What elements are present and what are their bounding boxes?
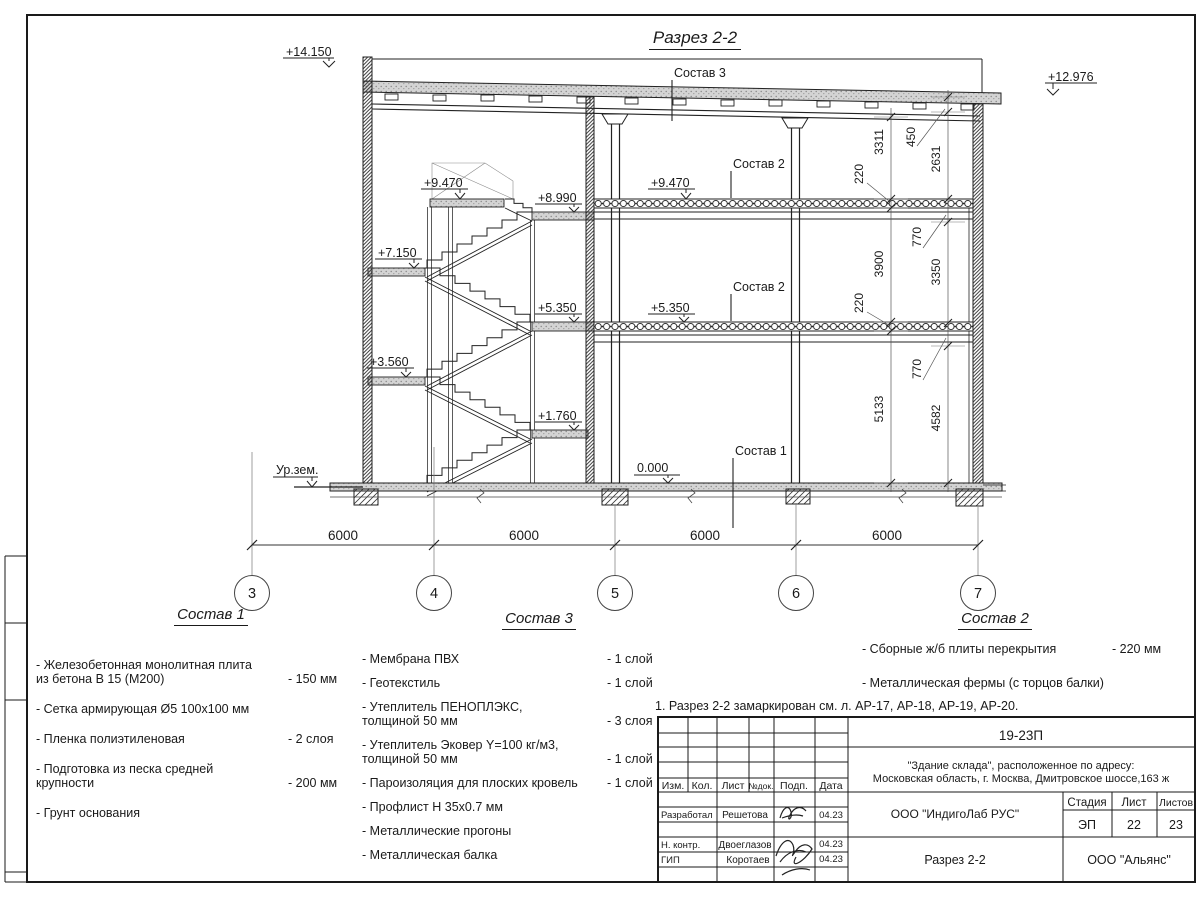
dim-value: 3311: [872, 129, 886, 155]
composition3-list: - Мембрана ПВХ - 1 слой - Геотекстиль - …: [362, 652, 658, 872]
dim-value: 6000: [328, 528, 358, 543]
stair-flight: [427, 430, 532, 483]
item-text: - Металлические прогоны: [362, 824, 607, 838]
bottom-dimensions: 6000 6000 6000 6000 3 4 5 6 7: [235, 447, 996, 611]
list-item: - Пленка полиэтиленовая - 2 слоя: [36, 732, 348, 746]
list-item: - Мембрана ПВХ - 1 слой: [362, 652, 658, 666]
item-value: - 220 мм: [1112, 642, 1161, 656]
stamp-role: Н. контр.: [661, 840, 700, 851]
dim-value: 6000: [509, 528, 539, 543]
sheet-note: 1. Разрез 2-2 замаркирован см. л. АР-17,…: [655, 699, 1175, 713]
dim-value: 2631: [929, 145, 943, 172]
item-value: - 1 слой: [607, 652, 653, 666]
leader-label-sostav3: Состав 3: [674, 66, 726, 80]
axis-number: 5: [611, 586, 619, 602]
item-text: - Пароизоляция для плоских кровель: [362, 776, 607, 790]
stamp-sheets-label: Листов: [1159, 797, 1194, 809]
list-item: - Металлическая фермы (с торцов балки): [862, 676, 1162, 690]
item-value: - 1 слой: [607, 752, 653, 766]
column-axis6: [782, 118, 808, 483]
signatures: [776, 807, 812, 875]
elevation-mark: +8.990: [535, 191, 582, 212]
floor-slab-5350: [594, 322, 973, 342]
stamp-object-line1: "Здание склада", расположенное по адресу…: [908, 760, 1135, 772]
stamp-col-kol: Кол.: [692, 780, 713, 792]
composition3-title: Состав 3: [474, 610, 604, 627]
title-block: 19-23П "Здание склада", расположенное по…: [658, 717, 1195, 882]
foundations: [354, 489, 983, 506]
page-title-text: Разрез 2-2: [649, 28, 741, 50]
stair-landings: [368, 199, 594, 438]
axis-number: 6: [792, 586, 800, 602]
list-item: - Утеплитель ПЕНОПЛЭКС, толщиной 50 мм -…: [362, 700, 658, 728]
stamp-drawing-name: Разрез 2-2: [924, 853, 985, 867]
item-value: - 200 мм: [288, 776, 337, 790]
dim-value: 220: [852, 293, 866, 313]
elevation-value: +12.976: [1048, 70, 1094, 84]
elevation-mark: +1.760: [535, 409, 582, 430]
dim-value: 770: [910, 359, 924, 379]
list-item: - Пароизоляция для плоских кровель - 1 с…: [362, 776, 658, 790]
composition2-title: Состав 2: [930, 610, 1060, 627]
elevation-value: +8.990: [538, 191, 577, 205]
left-wall: [363, 57, 372, 490]
item-text: - Сетка армирующая Ø5 100х100 мм: [36, 702, 288, 716]
right-wall: [973, 104, 983, 484]
item-value: - 1 слой: [607, 776, 653, 790]
stamp-name: Коротаев: [726, 855, 769, 866]
elevation-value: +7.150: [378, 246, 417, 260]
stamp-name: Решетова: [722, 810, 768, 821]
elevation-value: 0.000: [637, 461, 668, 475]
page-title: Разрез 2-2: [585, 28, 805, 48]
item-text: - Железобетонная монолитная плита из бет…: [36, 658, 288, 686]
list-item: - Подготовка из песка средней крупности …: [36, 762, 348, 790]
composition1-title: Состав 1: [146, 606, 276, 623]
stamp-col-list: Лист: [722, 780, 745, 792]
item-value: - 3 слоя: [607, 714, 652, 728]
stamp-stage-label: Стадия: [1067, 797, 1106, 809]
stamp-col-data: Дата: [819, 780, 842, 792]
stamp-name: Двоеглазов: [718, 840, 771, 851]
stamp-role: Разработал: [661, 810, 713, 821]
stair-flights: [425, 199, 532, 483]
stamp-role: ГИП: [661, 855, 680, 866]
elevation-mark: +9.470: [648, 176, 695, 199]
stair-shaft-wall: [586, 97, 594, 483]
elevation-mark: +12.976: [1045, 70, 1097, 95]
list-item: - Металлические прогоны: [362, 824, 658, 838]
composition-leaders: Состав 3 Состав 2 Состав 2 Состав 1: [672, 66, 787, 528]
dim-value: 5133: [872, 395, 886, 422]
elevation-value: +14.150: [286, 45, 332, 59]
leader-label-sostav2-upper: Состав 2: [733, 157, 785, 171]
stair-flight: [427, 212, 532, 268]
item-text: - Утеплитель ПЕНОПЛЭКС, толщиной 50 мм: [362, 700, 607, 728]
building-section: [294, 57, 1006, 506]
column-axis5: [602, 114, 628, 483]
stamp-doc-number: 19-23П: [999, 728, 1043, 743]
axis-number: 7: [974, 586, 982, 602]
list-item: - Утеплитель Эковер Y=100 кг/м3, толщино…: [362, 738, 658, 766]
axis-extension-lines: [252, 447, 978, 575]
stamp-stage-value: ЭП: [1078, 818, 1096, 832]
dim-value: 450: [904, 127, 918, 147]
axis-number: 3: [248, 586, 256, 602]
item-text: - Мембрана ПВХ: [362, 652, 607, 666]
dim-value: 220: [852, 164, 866, 184]
item-value: - 2 слоя: [288, 732, 333, 746]
elevation-mark: +5.350: [648, 301, 695, 322]
dim-value: 770: [910, 227, 924, 247]
walls: [363, 57, 983, 490]
signature: [776, 841, 812, 875]
stamp-object-line2: Московская область, г. Москва, Дмитровск…: [873, 773, 1170, 785]
signature: [780, 807, 806, 819]
stamp-sheet-label: Лист: [1122, 797, 1148, 809]
stamp-sheet-value: 22: [1127, 818, 1141, 832]
ground-level-label: Ур.зем.: [276, 463, 318, 477]
leader-label-sostav1: Состав 1: [735, 444, 787, 458]
elevation-mark: +7.150: [375, 246, 422, 268]
item-value: - 150 мм: [288, 672, 337, 686]
list-item: - Профлист Н 35х0.7 мм: [362, 800, 658, 814]
item-text: - Металлическая балка: [362, 848, 607, 862]
item-text: - Профлист Н 35х0.7 мм: [362, 800, 607, 814]
stair-flight: [425, 268, 530, 322]
list-item: - Грунт основания: [36, 806, 348, 820]
floor-slab-9470: [594, 199, 973, 219]
stamp-col-izm: Изм.: [662, 780, 685, 792]
axis-bubbles: 3 4 5 6 7: [235, 576, 996, 611]
item-text: - Подготовка из песка средней крупности: [36, 762, 288, 790]
list-item: - Металлическая балка: [362, 848, 658, 862]
stamp-date: 04.23: [819, 839, 843, 850]
item-value: - 1 слой: [607, 676, 653, 690]
stair-flight: [427, 322, 532, 377]
dim-value: 3350: [929, 258, 943, 285]
drawing-sheet: +14.150 +12.976 +9.470 +8.990 +7.150 +5.…: [0, 0, 1200, 900]
roof-assembly: [363, 81, 1001, 121]
elevation-value: +5.350: [538, 301, 577, 315]
dim-value: 4582: [929, 404, 943, 431]
vertical-dimensions: 3311 220 3900 220 5133 450 2631 770 3350…: [852, 90, 965, 492]
ground-level-mark: Ур.зем.: [273, 463, 318, 487]
item-text: - Утеплитель Эковер Y=100 кг/м3, толщино…: [362, 738, 607, 766]
item-text: - Металлическая фермы (с торцов балки): [862, 676, 1112, 690]
elevation-value: +5.350: [651, 301, 690, 315]
elevation-value: +9.470: [651, 176, 690, 190]
list-item: - Сетка армирующая Ø5 100х100 мм: [36, 702, 348, 716]
elevation-mark: +9.470: [421, 176, 468, 199]
staircase: [368, 163, 594, 496]
stamp-col-ndok: №док.: [749, 781, 774, 791]
elevation-mark: +5.350: [535, 301, 582, 322]
list-item: - Железобетонная монолитная плита из бет…: [36, 658, 348, 686]
leader-label-sostav2-lower: Состав 2: [733, 280, 785, 294]
stamp-company: ООО "ИндигоЛаб РУС": [891, 807, 1019, 821]
dim-value: 6000: [872, 528, 902, 543]
ground-slab: [330, 483, 1002, 491]
item-text: - Пленка полиэтиленовая: [36, 732, 288, 746]
stamp-header-row: Изм. Кол. Лист №док. Подп. Дата: [662, 780, 843, 792]
composition1-list: - Железобетонная монолитная плита из бет…: [36, 658, 348, 836]
stamp-date: 04.23: [819, 854, 843, 865]
elevation-value: +3.560: [370, 355, 409, 369]
dim-value: 3900: [872, 250, 886, 277]
ground-floor: [294, 483, 1006, 506]
stamp-contractor: ООО "Альянс": [1087, 853, 1171, 867]
item-text: - Сборные ж/б плиты перекрытия: [862, 642, 1112, 656]
elevation-mark: +14.150: [283, 45, 335, 67]
dim-line-inner: 3311 220 3900 220 5133: [852, 108, 908, 492]
list-item: - Сборные ж/б плиты перекрытия - 220 мм: [862, 642, 1162, 656]
dim-line-outer: 450 2631 770 3350 770 4582: [904, 90, 965, 492]
stamp-col-podp: Подп.: [780, 780, 808, 792]
item-text: - Геотекстиль: [362, 676, 607, 690]
elevation-mark: 0.000: [634, 461, 680, 483]
stamp-signature-rows: Разработал Решетова 04.23 Н. контр. Двое…: [661, 810, 843, 866]
elevation-mark: +3.560: [367, 355, 414, 377]
dim-value: 6000: [690, 528, 720, 543]
elevation-value: +9.470: [424, 176, 463, 190]
stair-flight: [425, 377, 530, 430]
axis-number: 4: [430, 586, 438, 602]
item-text: - Грунт основания: [36, 806, 288, 820]
stamp-date: 04.23: [819, 810, 843, 821]
list-item: - Геотекстиль - 1 слой: [362, 676, 658, 690]
elevation-value: +1.760: [538, 409, 577, 423]
stamp-sheets-value: 23: [1169, 818, 1183, 832]
